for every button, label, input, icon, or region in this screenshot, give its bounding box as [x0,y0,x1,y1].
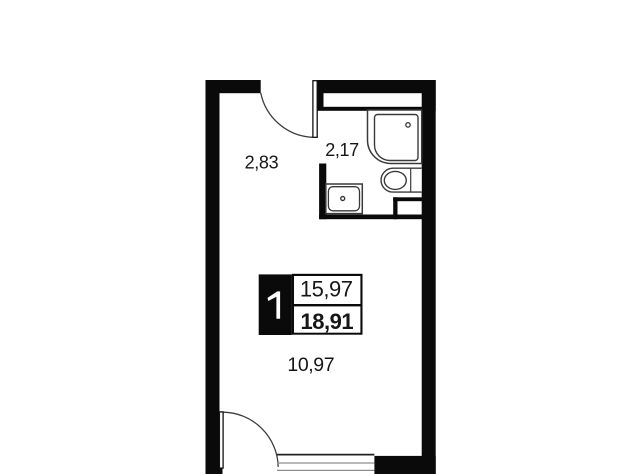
svg-text:10,97: 10,97 [287,354,334,376]
svg-text:2,83: 2,83 [245,153,279,173]
svg-text:2,17: 2,17 [325,140,359,160]
svg-text:15,97: 15,97 [300,276,353,301]
svg-text:18,91: 18,91 [301,309,354,334]
